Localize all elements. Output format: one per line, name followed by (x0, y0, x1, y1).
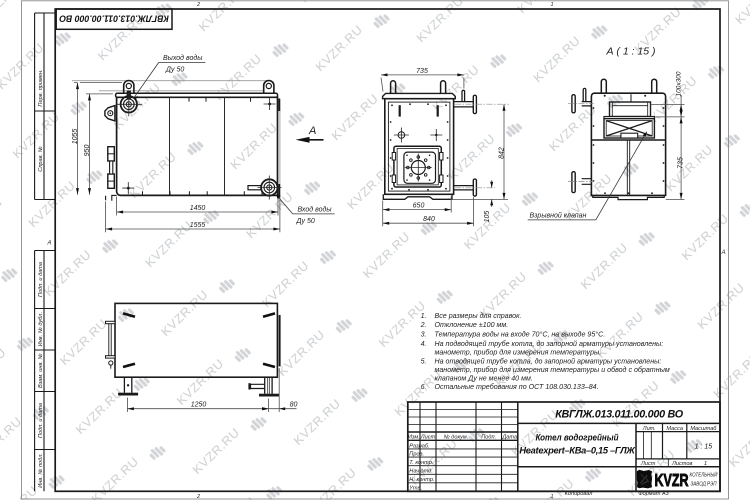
svg-text:манометр, прибор для измерения: манометр, прибор для измерения температу… (435, 366, 670, 374)
svg-text:Инв. № подл.: Инв. № подл. (38, 453, 44, 488)
svg-text:Ду 50: Ду 50 (296, 218, 315, 225)
svg-text:Инв. № дубл.: Инв. № дубл. (38, 312, 44, 346)
svg-text:На отводящей трубе котла, до з: На отводящей трубе котла, до запорной ар… (435, 357, 662, 365)
svg-text:Формат А3: Формат А3 (638, 491, 669, 497)
svg-text:КОТЕЛЬНЫЙ: КОТЕЛЬНЫЙ (690, 471, 718, 479)
svg-text:1055: 1055 (72, 129, 79, 145)
svg-text:Пров.: Пров. (409, 452, 424, 458)
svg-text:клапаном Ду не менее 40 мм.: клапаном Ду не менее 40 мм. (435, 374, 533, 382)
svg-text:Остальные требования по ОСТ 10: Остальные требования по ОСТ 108.030.133–… (435, 383, 599, 391)
svg-text:Листов: Листов (671, 461, 692, 467)
svg-text:ЗАВОД РЭП: ЗАВОД РЭП (691, 481, 717, 487)
svg-text:Утв.: Утв. (408, 486, 422, 492)
svg-text:Выход воды: Выход воды (163, 54, 203, 62)
svg-text:Лист: Лист (420, 434, 436, 440)
svg-text:Вход воды: Вход воды (298, 206, 333, 214)
svg-text:Разраб.: Разраб. (409, 443, 429, 449)
svg-text:2: 2 (196, 494, 200, 500)
svg-text:А ( 1 : 15 ): А ( 1 : 15 ) (605, 46, 655, 58)
svg-text:Лист: Лист (640, 461, 656, 467)
svg-text:1250: 1250 (191, 402, 207, 409)
svg-text:Подп.: Подп. (481, 434, 496, 440)
svg-text:Масштаб: Масштаб (690, 426, 717, 432)
svg-text:А: А (46, 241, 51, 247)
svg-text:Взрывной клапан: Взрывной клапан (530, 212, 587, 220)
svg-text:Температура воды на входе 70°С: Температура воды на входе 70°С, на выход… (435, 331, 606, 339)
svg-text:5.: 5. (421, 357, 427, 365)
svg-text:105: 105 (484, 211, 491, 223)
svg-text:1: 1 (550, 494, 553, 500)
svg-text:80: 80 (290, 402, 298, 409)
svg-text:Масса: Масса (666, 426, 683, 432)
svg-text:3.: 3. (421, 331, 427, 339)
svg-text:Дата: Дата (501, 434, 517, 440)
svg-text:манометр, прибор для измерения: манометр, прибор для измерения температу… (435, 349, 602, 357)
svg-text:Котел водогрейный: Котел водогрейный (536, 432, 619, 443)
svg-text:842: 842 (499, 147, 506, 159)
svg-text:Т. контр.: Т. контр. (409, 460, 433, 466)
svg-text:Лит.: Лит. (642, 426, 656, 432)
svg-text:1: 1 (550, 2, 553, 8)
svg-text:A: A (308, 125, 316, 137)
svg-text:Heatexpert–КВа–0,15 –ГЛЖ: Heatexpert–КВа–0,15 –ГЛЖ (519, 446, 636, 456)
svg-text:735: 735 (416, 68, 428, 75)
svg-text:КВГЛЖ.013.011.00.000 ВО: КВГЛЖ.013.011.00.000 ВО (59, 14, 169, 24)
svg-text:4.: 4. (421, 340, 427, 348)
svg-text:2.: 2. (420, 321, 427, 329)
svg-text:1 : 15: 1 : 15 (695, 443, 713, 450)
svg-text:Изм.: Изм. (408, 434, 420, 440)
svg-text:Перв. примен.: Перв. примен. (38, 69, 44, 106)
svg-text:Ду 50: Ду 50 (165, 67, 184, 74)
svg-text:Подп. и дата: Подп. и дата (38, 403, 44, 438)
svg-text:950: 950 (84, 145, 91, 157)
svg-text:Отклонение ±100 мм.: Отклонение ±100 мм. (435, 321, 509, 329)
svg-text:Н. контр.: Н. контр. (409, 477, 434, 483)
svg-text:Взам. инв. №: Взам. инв. № (38, 353, 44, 388)
svg-text:KVZR: KVZR (655, 470, 689, 490)
svg-text:Нач.отд.: Нач.отд. (409, 469, 433, 475)
svg-text:На подводящей трубе котла, до: На подводящей трубе котла, до запорной а… (435, 340, 664, 348)
svg-text:№ докум.: № докум. (444, 434, 469, 440)
svg-text:6.: 6. (421, 383, 427, 391)
svg-text:1: 1 (704, 461, 707, 467)
svg-text:Все размеры для справок.: Все размеры для справок. (435, 312, 522, 320)
svg-text:Копировал: Копировал (565, 491, 594, 497)
svg-text:Подп. и дата: Подп. и дата (38, 262, 44, 297)
svg-text:А: А (721, 250, 726, 256)
svg-text:735: 735 (678, 157, 685, 169)
svg-text:100х300: 100х300 (676, 71, 683, 96)
svg-text:1.: 1. (421, 312, 427, 320)
svg-text:840: 840 (423, 216, 435, 223)
svg-text:2: 2 (196, 2, 200, 8)
svg-text:1555: 1555 (190, 222, 206, 229)
svg-text:1450: 1450 (190, 205, 206, 212)
svg-text:650: 650 (413, 203, 425, 210)
svg-text:КВГЛЖ.013.011.00.000 ВО: КВГЛЖ.013.011.00.000 ВО (555, 408, 684, 420)
svg-text:Справ. №: Справ. № (38, 146, 44, 171)
